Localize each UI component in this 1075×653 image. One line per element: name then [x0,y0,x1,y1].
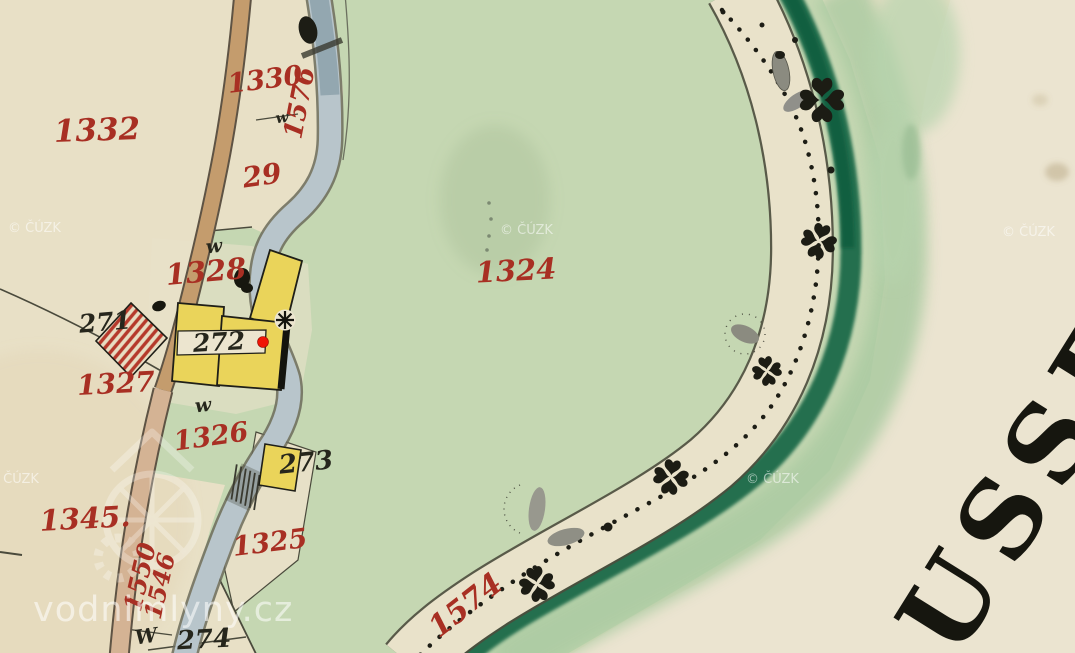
building-273-shape [259,444,301,491]
copyright-watermark-4: © ČÚZK [746,472,799,487]
copyright-watermark-5: © ČÚZK [0,472,39,487]
copyright-watermark-3: © ČÚZK [1002,225,1055,240]
waterwheel-symbol [275,310,296,331]
mill-location-marker [258,337,269,348]
cadastral-map: USSE 1332133015762913281327132413261345.… [0,0,1075,653]
site-watermark: vodnimlyny.cz [33,590,293,630]
copyright-watermark-2: © ČÚZK [500,223,553,238]
mill-courtyard-strip [177,330,266,355]
copyright-watermark-1: © ČÚZK [8,221,61,236]
